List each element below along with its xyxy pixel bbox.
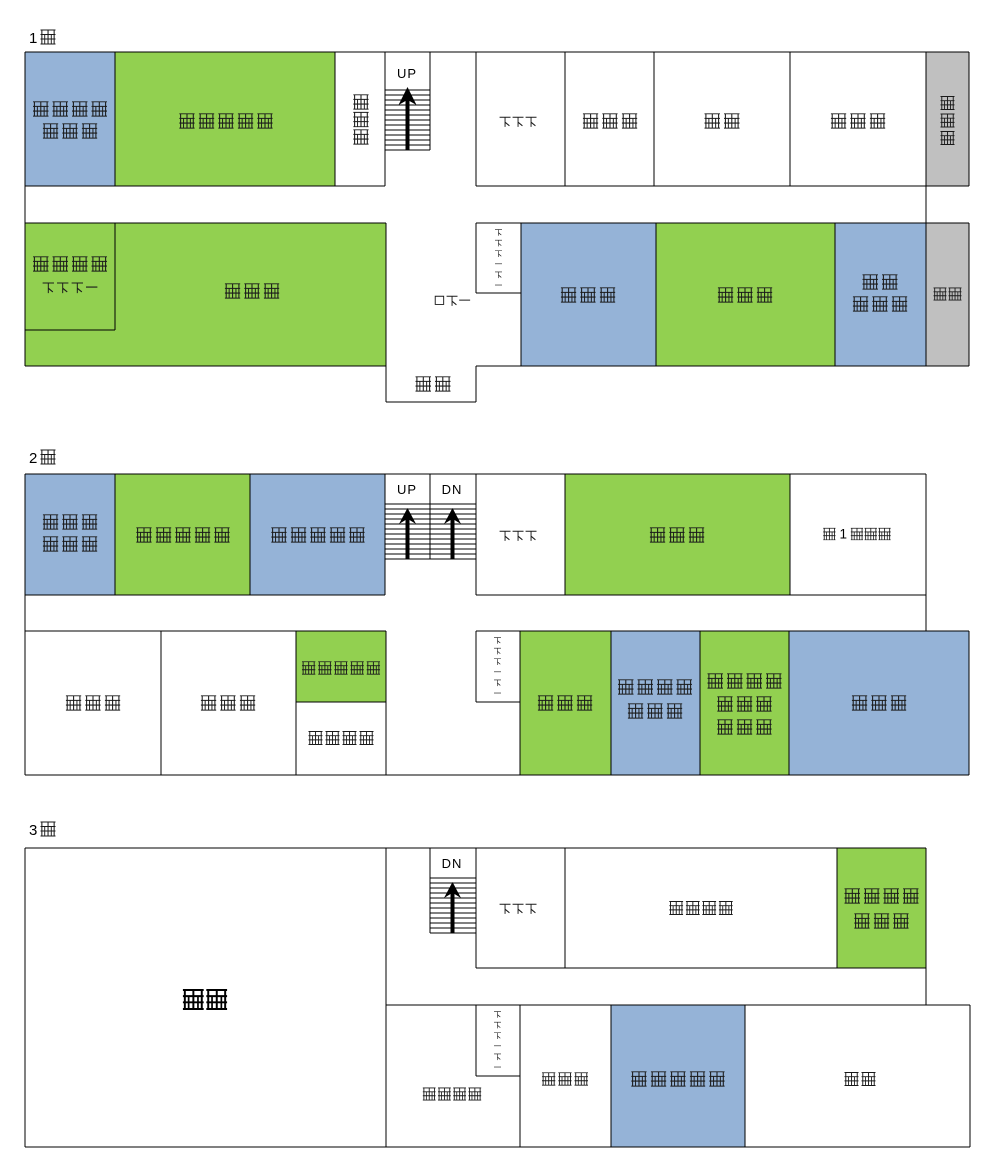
svg-text:UP: UP: [397, 66, 417, 81]
svg-text:DN: DN: [442, 482, 463, 497]
svg-text:1: 1: [839, 527, 847, 542]
svg-text:2: 2: [29, 450, 37, 467]
svg-text:UP: UP: [397, 482, 417, 497]
svg-text:1: 1: [29, 30, 37, 47]
svg-text:DN: DN: [442, 856, 463, 871]
svg-text:3: 3: [29, 822, 37, 839]
